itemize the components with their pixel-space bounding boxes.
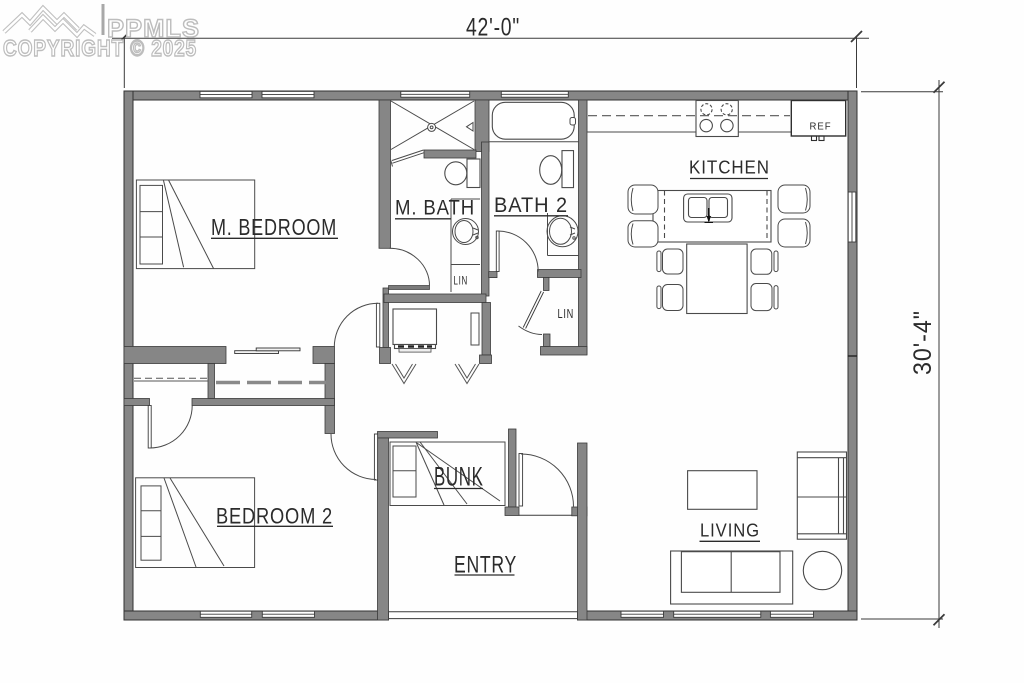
svg-text:BUNK: BUNK bbox=[434, 462, 484, 492]
svg-text:M. BATH: M. BATH bbox=[395, 196, 475, 220]
svg-text:LIN: LIN bbox=[558, 306, 575, 321]
svg-text:M. BEDROOM: M. BEDROOM bbox=[211, 214, 337, 240]
svg-text:BATH 2: BATH 2 bbox=[494, 193, 568, 217]
svg-text:30'-4": 30'-4" bbox=[909, 310, 937, 375]
svg-text:LIN: LIN bbox=[454, 276, 469, 288]
svg-text:BEDROOM 2: BEDROOM 2 bbox=[216, 504, 333, 529]
svg-text:KITCHEN: KITCHEN bbox=[689, 158, 770, 178]
svg-text:COPYRIGHT © 2025: COPYRIGHT © 2025 bbox=[3, 35, 197, 61]
svg-text:LIVING: LIVING bbox=[700, 520, 760, 541]
svg-text:42'-0": 42'-0" bbox=[466, 14, 520, 42]
svg-text:REF: REF bbox=[810, 122, 832, 133]
